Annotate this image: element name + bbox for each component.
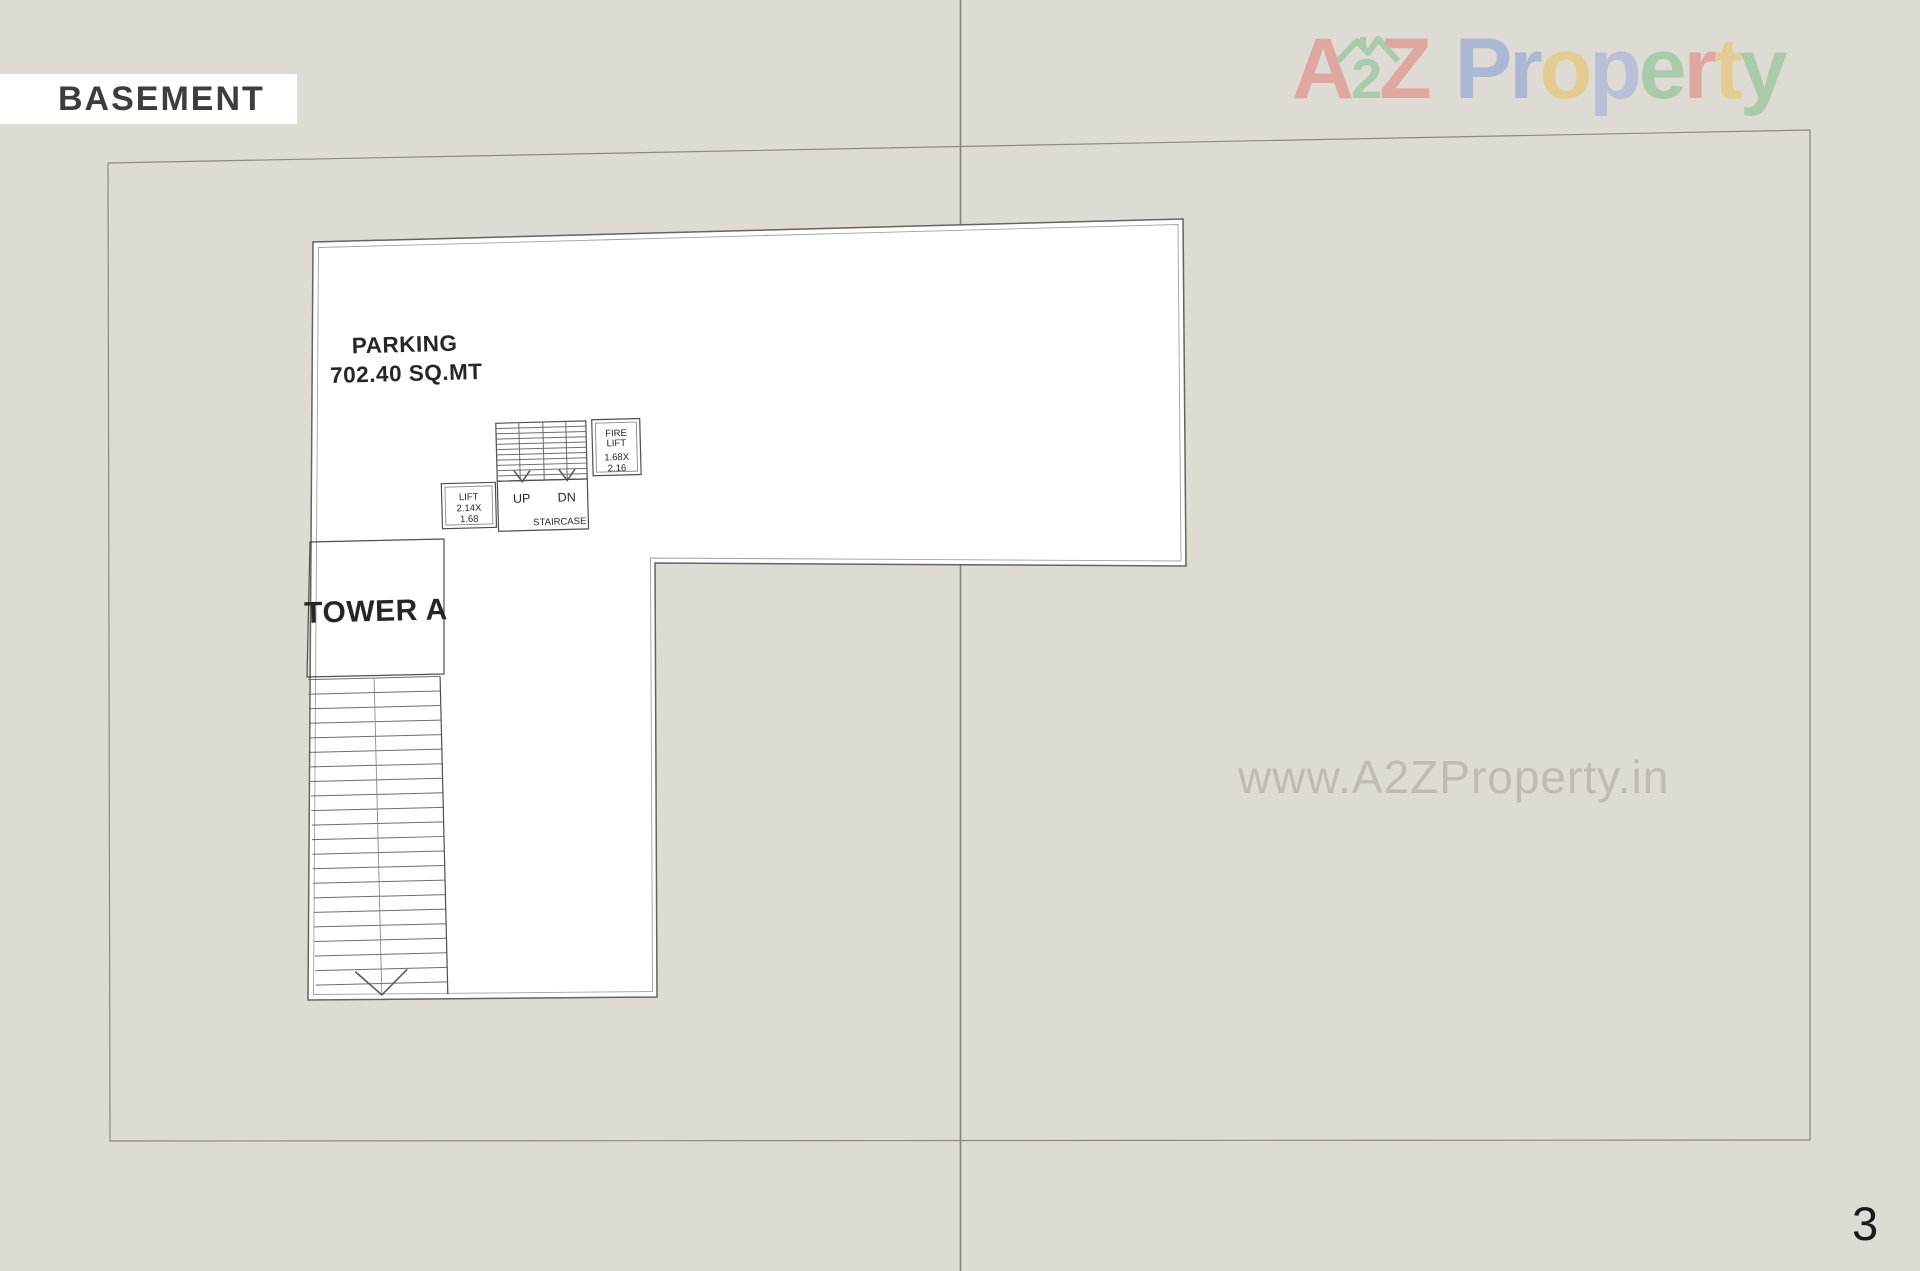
basement-floor-plan-page: PARKING 702.40 SQ.MT UP DN STAIRCASE — [0, 0, 1920, 1271]
logo-letter: p — [1589, 21, 1639, 117]
floor-plan-drawing: PARKING 702.40 SQ.MT UP DN STAIRCASE — [0, 0, 1920, 1271]
page-number: 3 — [1852, 1196, 1878, 1251]
parking-area: 702.40 SQ.MT — [330, 359, 483, 388]
watermark: www.A2ZProperty.in — [1238, 750, 1669, 804]
house-roof-icon — [1336, 32, 1412, 68]
down-label: DN — [558, 490, 576, 504]
fire-lift-label-4: 2.16 — [608, 463, 627, 474]
lift-label-3: 1.68 — [460, 514, 479, 525]
floor-plan: PARKING 702.40 SQ.MT UP DN STAIRCASE — [304, 219, 1186, 1000]
tower-a-label: TOWER A — [304, 593, 448, 630]
logo-letter: t — [1714, 21, 1740, 117]
staircase-label: STAIRCASE — [533, 516, 586, 528]
parking-title: PARKING — [351, 331, 457, 359]
sheet-title-box: BASEMENT — [0, 74, 297, 124]
logo-letter: y — [1740, 21, 1785, 117]
logo-letter: r — [1509, 21, 1539, 117]
logo-letter: r — [1684, 21, 1714, 117]
up-label: UP — [513, 491, 531, 505]
sheet-title: BASEMENT — [58, 80, 265, 119]
fire-lift-label-2: LIFT — [606, 438, 626, 450]
a2z-property-logo: A2ZProperty — [1292, 26, 1785, 112]
logo-letter: o — [1540, 21, 1590, 117]
logo-letter: P — [1455, 21, 1509, 117]
lift-label-1: LIFT — [459, 492, 479, 504]
lift-label-2: 2.14X — [456, 503, 482, 515]
fire-lift-label-3: 1.68X — [604, 452, 630, 464]
logo-letter: e — [1639, 21, 1684, 117]
